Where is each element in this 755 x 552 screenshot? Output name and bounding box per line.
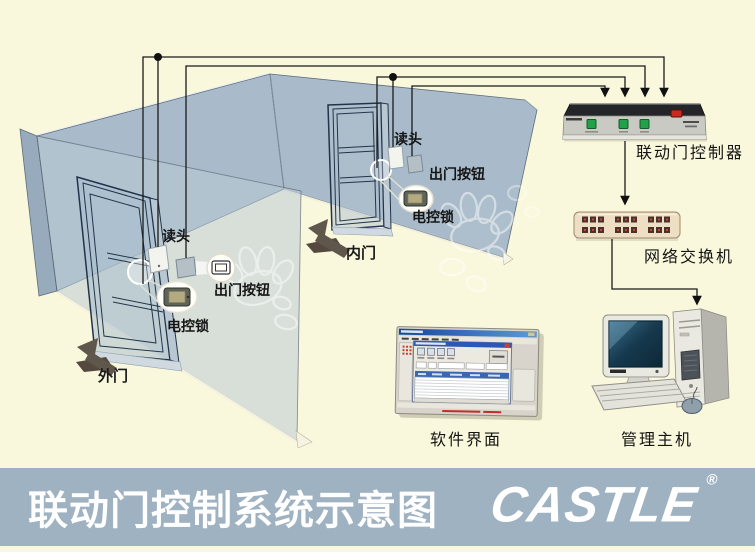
- inner-exit-button-device: [407, 155, 423, 173]
- outer-exit-button-device: [176, 257, 196, 278]
- tower-side: [701, 309, 729, 404]
- outer-door-label: 外门: [97, 367, 128, 385]
- footer-bar: 联动门控制系统示意图 CASTLE®: [0, 468, 755, 546]
- controller-power-indicator: [671, 110, 682, 117]
- controller-label: 联动门控制器: [636, 144, 744, 162]
- software-label: 软件界面: [430, 431, 502, 449]
- diagram-stage: 读头 出门按钮 电控锁 外门 读头 出门按钮 电控锁 内门 联动门控制器 网络交…: [0, 0, 755, 552]
- brand-logo: CASTLE®: [487, 476, 713, 534]
- software-window: [395, 327, 544, 421]
- registered-mark: ®: [705, 472, 719, 489]
- wire-junction-dot: [154, 53, 162, 61]
- host-computer: [592, 309, 729, 414]
- brand-logo-text: CASTLE: [487, 477, 701, 533]
- host-label: 管理主机: [621, 431, 693, 449]
- inner-door-label: 内门: [346, 244, 376, 262]
- inner-exit-button-label: 出门按钮: [429, 166, 485, 182]
- network-switch-label: 网络交换机: [644, 247, 734, 266]
- network-switch-device: [574, 212, 680, 241]
- inner-reader-label: 读头: [394, 131, 422, 147]
- keyboard: [592, 379, 686, 410]
- wire-junction-dot: [389, 73, 397, 81]
- controller-device: [563, 104, 708, 142]
- outer-exit-button-label: 出门按钮: [214, 282, 270, 298]
- inner-lock-label: 电控锁: [412, 209, 454, 225]
- page-title: 联动门控制系统示意图: [28, 478, 438, 536]
- outer-lock-label: 电控锁: [167, 318, 209, 334]
- outer-reader-device: [148, 245, 169, 273]
- inner-reader-device: [388, 146, 404, 169]
- outer-reader-label: 读头: [162, 228, 190, 244]
